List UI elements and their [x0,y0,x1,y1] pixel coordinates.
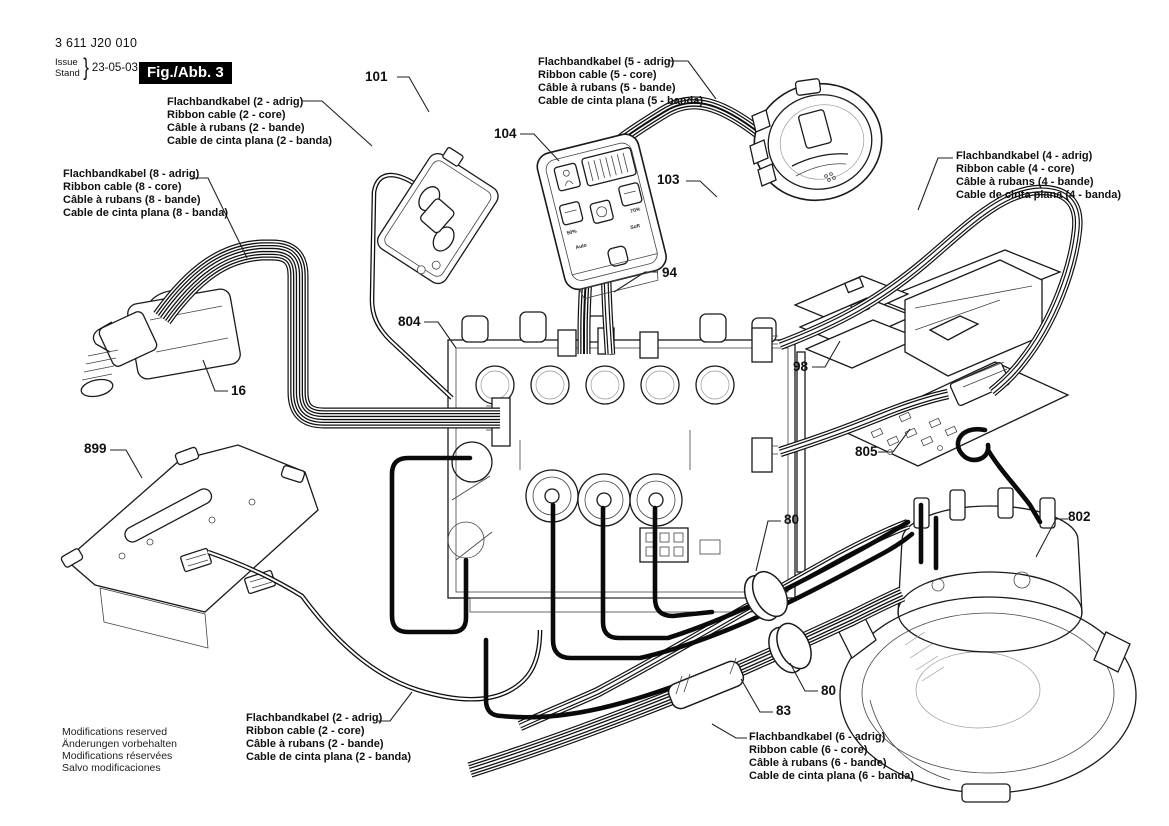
callout-83: 83 [776,703,791,718]
callout-98: 98 [793,359,808,374]
mounting-plate-899 [60,445,318,648]
electronics-module-804 [448,312,805,612]
callout-103: 103 [657,172,680,187]
callout-802: 802 [1068,509,1091,524]
label-cable5: Flachbandkabel (5 - adrig) Ribbon cable … [538,56,703,108]
label-cable6: Flachbandkabel (6 - adrig) Ribbon cable … [749,731,914,783]
rotary-dial-103 [743,72,892,212]
parts-diagram-canvas: 50% 70% Auto Soft [0,0,1169,826]
callout-104: 104 [494,126,517,141]
cable-sleeve-83 [666,658,746,711]
figure-title: Fig./Abb. 3 [139,62,232,84]
callout-805: 805 [855,444,878,459]
callout-80-lower: 80 [821,683,836,698]
modifications-notice: Modifications reserved Änderungen vorbeh… [62,726,177,774]
callout-804: 804 [398,314,421,329]
issue-date: 23-05-03 [92,63,138,74]
stand-label: Stand [55,69,80,80]
label-cable8: Flachbandkabel (8 - adrig) Ribbon cable … [63,168,228,220]
ferrite-ring-80-lower [762,618,818,678]
label-cable2-top: Flachbandkabel (2 - adrig) Ribbon cable … [167,96,332,148]
callout-899: 899 [84,441,107,456]
callout-16: 16 [231,383,246,398]
small-pcb-101 [374,141,508,287]
label-cable4: Flachbandkabel (4 - adrig) Ribbon cable … [956,150,1121,202]
callout-94: 94 [662,265,677,280]
label-cable2-bottom: Flachbandkabel (2 - adrig) Ribbon cable … [246,712,411,764]
callout-80-upper: 80 [784,512,799,527]
callout-101: 101 [365,69,388,84]
part-number: 3 611 J20 010 [55,36,137,50]
brace-glyph: } [83,63,89,74]
issue-label: Issue [55,58,80,69]
issue-stand-block: Issue Stand } 23-05-03 [55,58,138,79]
